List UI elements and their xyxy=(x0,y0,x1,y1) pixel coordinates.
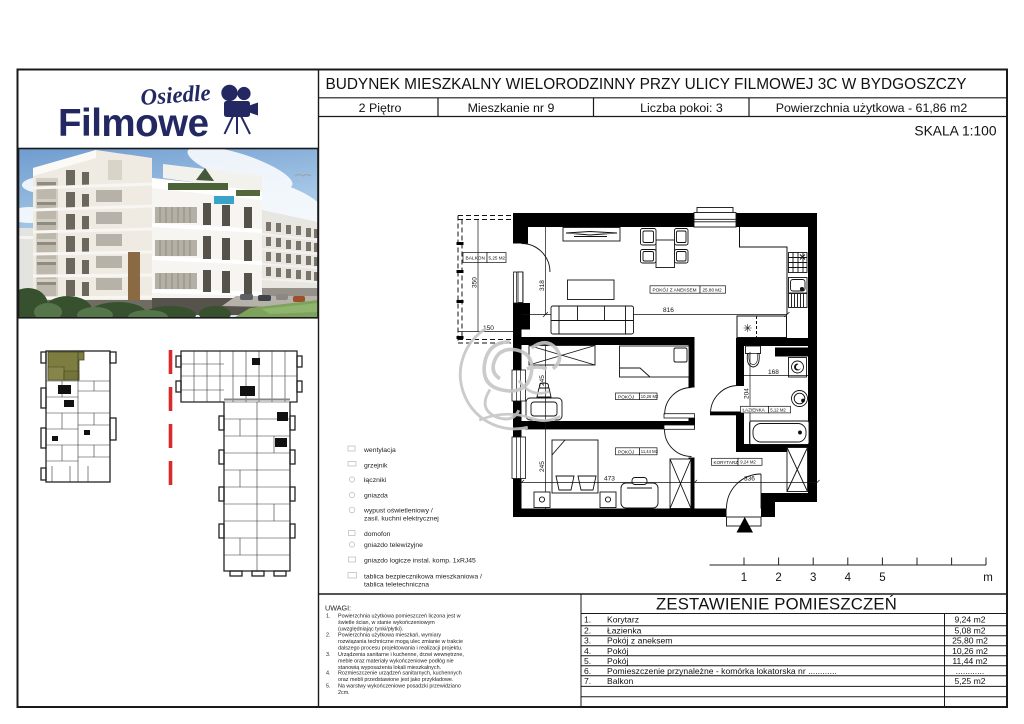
svg-text:✳: ✳ xyxy=(743,323,752,335)
svg-text:245: 245 xyxy=(539,461,546,472)
svg-text:3.: 3. xyxy=(326,652,331,658)
svg-text:Pokój z aneksem: Pokój z aneksem xyxy=(607,636,672,646)
svg-text:meble oraz materiały wykończen: meble oraz materiały wykończeniowe podłó… xyxy=(338,659,454,665)
svg-text:6.: 6. xyxy=(584,666,591,676)
svg-text:POKÓJ: POKÓJ xyxy=(618,393,635,400)
svg-text:Powierzchnia użytkowa - 61,86: Powierzchnia użytkowa - 61,86 m2 xyxy=(776,101,968,115)
svg-text:2 Piętro: 2 Piętro xyxy=(359,101,402,115)
svg-text:5.: 5. xyxy=(584,656,591,666)
svg-text:2: 2 xyxy=(775,572,781,584)
svg-text:POKÓJ Z ANEKSEM: POKÓJ Z ANEKSEM xyxy=(653,286,697,292)
svg-text:5,25 M2: 5,25 M2 xyxy=(489,256,506,261)
svg-text:318: 318 xyxy=(539,280,546,291)
svg-text:świetle ścian, w stanie wykońc: świetle ścian, w stanie wykończeniowym xyxy=(338,620,435,626)
svg-text:25,80 m2: 25,80 m2 xyxy=(952,636,988,646)
svg-text:25.80 M2: 25.80 M2 xyxy=(703,287,723,292)
svg-text:Łazienka: Łazienka xyxy=(607,626,642,636)
svg-text:9,24 m2: 9,24 m2 xyxy=(954,615,985,625)
svg-text:BALKON: BALKON xyxy=(466,256,486,262)
svg-text:168: 168 xyxy=(768,369,779,376)
svg-text:tablica bezpiecznikowa mieszka: tablica bezpiecznikowa mieszkaniowa / xyxy=(364,574,482,581)
svg-text:473: 473 xyxy=(604,476,615,483)
svg-text:1: 1 xyxy=(741,572,747,584)
svg-text:oraz mebli przedstawione jest: oraz mebli przedstawione jest jako przyk… xyxy=(338,677,453,683)
svg-text:SKALA 1:100: SKALA 1:100 xyxy=(914,124,996,139)
svg-text:Powierzchnia użytkowa pomieszc: Powierzchnia użytkowa pomieszczeń liczon… xyxy=(338,614,461,620)
svg-text:Mieszkanie nr 9: Mieszkanie nr 9 xyxy=(468,101,555,115)
svg-text:Korytarz: Korytarz xyxy=(607,615,639,625)
svg-text:wypust oświetleniowy /: wypust oświetleniowy / xyxy=(363,508,433,515)
svg-text:9,24 M2: 9,24 M2 xyxy=(740,460,756,465)
svg-text:4.: 4. xyxy=(584,646,591,656)
svg-text:10,26 m2: 10,26 m2 xyxy=(952,646,988,656)
svg-text:1.: 1. xyxy=(326,614,331,620)
svg-text:5.: 5. xyxy=(326,684,331,690)
svg-text:domofon: domofon xyxy=(364,531,391,538)
svg-text:11,44 M2: 11,44 M2 xyxy=(641,449,659,454)
svg-text:............: ............ xyxy=(956,666,985,676)
svg-text:BUDYNEK MIESZKALNY WIELORODZIN: BUDYNEK MIESZKALNY WIELORODZINNY PRZY UL… xyxy=(325,76,966,93)
svg-text:Rozmieszczenie urządzeń sanita: Rozmieszczenie urządzeń sanitarnych, kuc… xyxy=(338,671,462,677)
svg-text:Pokój: Pokój xyxy=(607,646,629,656)
svg-text:4.: 4. xyxy=(326,671,331,677)
svg-text:tablica teletechniczna: tablica teletechniczna xyxy=(364,582,429,589)
svg-text:11,44 m2: 11,44 m2 xyxy=(952,656,987,666)
svg-text:Filmowe: Filmowe xyxy=(58,102,209,145)
svg-text:2.: 2. xyxy=(326,633,331,639)
svg-text:KORYTARZ: KORYTARZ xyxy=(714,460,739,465)
svg-text:ŁAZIENKA: ŁAZIENKA xyxy=(743,408,766,413)
svg-text:Pomieszczenie przynależne - ko: Pomieszczenie przynależne - komórka loka… xyxy=(607,666,837,676)
svg-text:UWAGI:: UWAGI: xyxy=(325,604,351,613)
svg-text:łączniki: łączniki xyxy=(364,477,387,484)
svg-text:350: 350 xyxy=(472,277,479,288)
svg-text:Balkon: Balkon xyxy=(607,676,633,686)
svg-text:1.: 1. xyxy=(584,615,591,625)
svg-text:5,08 m2: 5,08 m2 xyxy=(954,626,985,636)
svg-text:245: 245 xyxy=(539,375,546,386)
svg-text:204: 204 xyxy=(744,388,751,399)
svg-text:7.: 7. xyxy=(584,676,591,686)
svg-text:POKÓJ: POKÓJ xyxy=(618,448,635,455)
svg-text:10,26 M2: 10,26 M2 xyxy=(641,394,659,399)
svg-text:rozwiązania techniczne mogą ul: rozwiązania techniczne mogą ulec zmianie… xyxy=(338,639,463,645)
svg-text:Urządzenia sanitarne i kuchenn: Urządzenia sanitarne i kuchenne, drzwi w… xyxy=(338,652,464,658)
svg-text:Powierzchnia użytkowa mieszkań: Powierzchnia użytkowa mieszkań, wymiary xyxy=(338,633,441,639)
svg-text:zasil. kuchni elektrycznej: zasil. kuchni elektrycznej xyxy=(364,516,439,523)
svg-text:wentylacja: wentylacja xyxy=(363,447,396,454)
svg-text:Pokój: Pokój xyxy=(607,656,629,666)
svg-text:2.: 2. xyxy=(584,626,591,636)
svg-text:gniazdo logicze instal. komp.: gniazdo logicze instal. komp. 1xRJ45 xyxy=(364,558,476,565)
svg-text:Na warstwy wykończeniowe posad: Na warstwy wykończeniowe posadzki przewi… xyxy=(338,684,461,690)
svg-text:2cm.: 2cm. xyxy=(338,690,350,696)
svg-text:5,25 m2: 5,25 m2 xyxy=(954,676,985,686)
svg-text:gniazda: gniazda xyxy=(364,493,388,500)
svg-text:gniazdo telewizyjne: gniazdo telewizyjne xyxy=(364,542,423,549)
svg-text:ZESTAWIENIE POMIESZCZEŃ: ZESTAWIENIE POMIESZCZEŃ xyxy=(656,595,897,614)
svg-text:336: 336 xyxy=(744,476,755,483)
svg-text:m: m xyxy=(983,572,993,584)
svg-text:5,12 M2: 5,12 M2 xyxy=(770,408,786,413)
svg-text:Liczba pokoi: 3: Liczba pokoi: 3 xyxy=(640,101,723,115)
svg-text:4: 4 xyxy=(845,572,852,584)
svg-text:dalszego procesu projektowania: dalszego procesu projektowania i realiza… xyxy=(338,646,462,652)
svg-text:3: 3 xyxy=(810,572,816,584)
svg-text:3.: 3. xyxy=(584,636,591,646)
svg-text:grzejnik: grzejnik xyxy=(364,463,388,470)
svg-text:5: 5 xyxy=(879,572,885,584)
svg-text:816: 816 xyxy=(663,307,674,314)
